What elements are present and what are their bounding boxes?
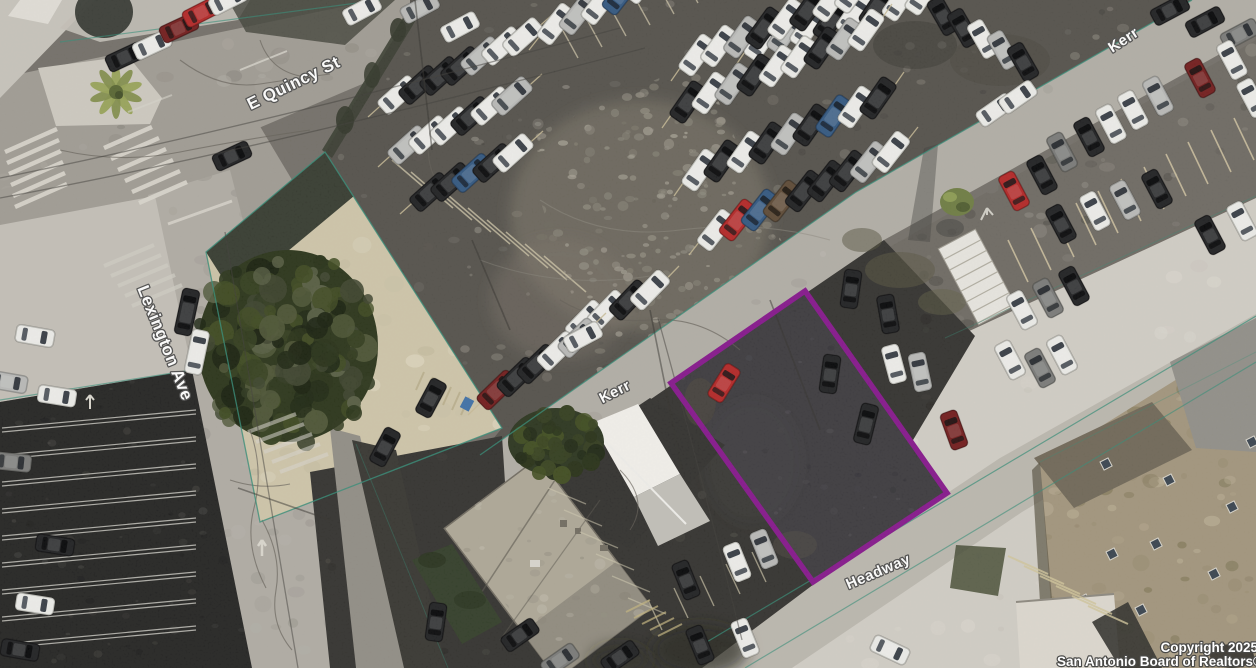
svg-text:Copyright 2025: Copyright 2025 — [1160, 640, 1256, 655]
svg-text:San Antonio Board of Realtors®: San Antonio Board of Realtors® — [1057, 654, 1256, 668]
